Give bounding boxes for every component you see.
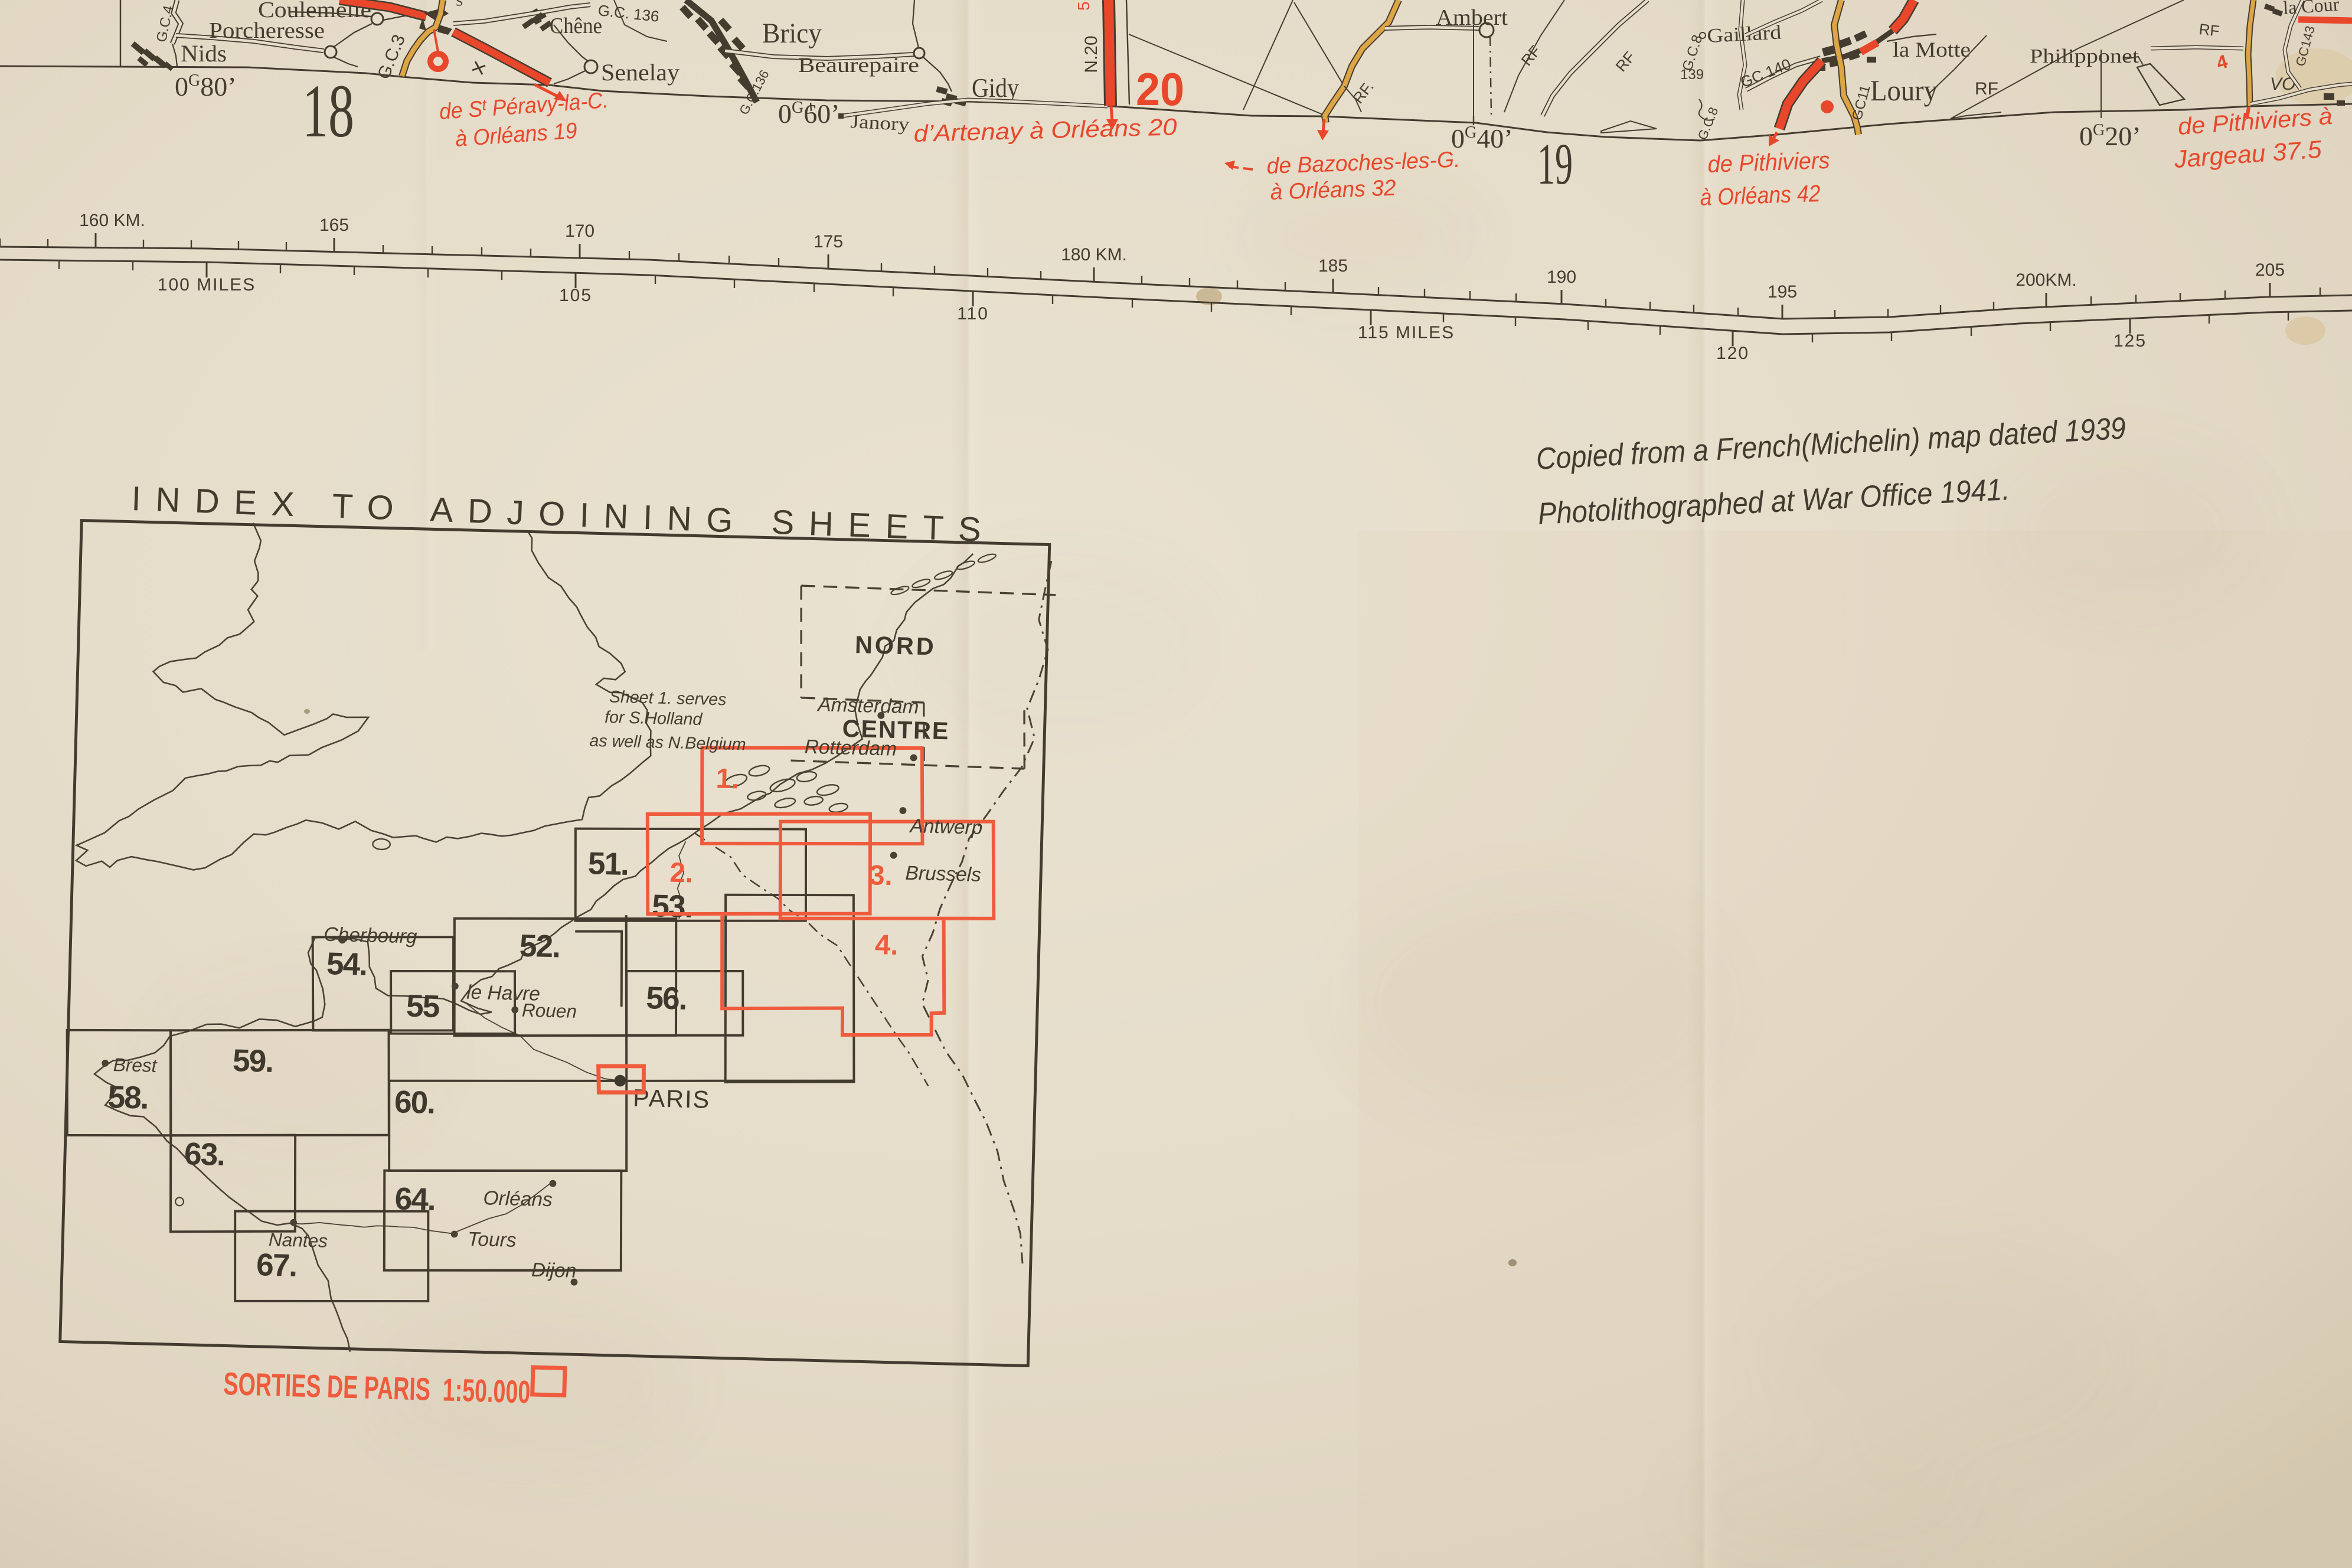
svg-text:60.: 60. <box>394 1084 435 1121</box>
svg-text:0G60’: 0G60’ <box>778 99 840 129</box>
svg-text:200KM.: 200KM. <box>2015 270 2076 290</box>
svg-text:Senelay: Senelay <box>601 59 680 86</box>
svg-text:1.: 1. <box>716 763 740 795</box>
svg-text:Sheet 1. serves: Sheet 1. serves <box>609 688 727 710</box>
svg-text:52.: 52. <box>519 929 560 965</box>
svg-text:170: 170 <box>565 221 594 241</box>
svg-text:205: 205 <box>2255 260 2285 280</box>
svg-text:18: 18 <box>302 69 354 153</box>
svg-text:125: 125 <box>2113 331 2147 351</box>
svg-text:Ambert: Ambert <box>1436 5 1508 30</box>
svg-text:Amsterdam: Amsterdam <box>816 694 919 718</box>
svg-text:110: 110 <box>957 304 989 324</box>
svg-text:53.: 53. <box>652 888 693 925</box>
svg-text:175: 175 <box>814 232 843 251</box>
svg-text:Antwerp: Antwerp <box>909 815 983 839</box>
svg-text:139: 139 <box>1680 67 1704 83</box>
svg-text:Orléans: Orléans <box>483 1187 553 1211</box>
svg-text:190: 190 <box>1547 267 1576 287</box>
svg-text:Rouen: Rouen <box>522 999 577 1022</box>
svg-text:58.: 58. <box>107 1080 149 1116</box>
svg-text:S: S <box>456 0 463 9</box>
svg-text:51.: 51. <box>587 846 629 882</box>
svg-text:Brussels: Brussels <box>905 863 982 886</box>
svg-text:56.: 56. <box>646 981 687 1017</box>
svg-text:RF: RF <box>2198 20 2220 40</box>
svg-text:120: 120 <box>1716 344 1749 363</box>
svg-text:à Orléans 32: à Orléans 32 <box>1270 176 1396 205</box>
svg-text:as well as N.Belgium: as well as N.Belgium <box>589 731 746 754</box>
svg-text:115 MILES: 115 MILES <box>1358 323 1455 342</box>
svg-text:2.: 2. <box>669 857 694 889</box>
svg-text:64.: 64. <box>394 1181 436 1217</box>
svg-text:63.: 63. <box>184 1136 225 1172</box>
svg-text:Nids: Nids <box>181 40 227 67</box>
svg-text:20: 20 <box>1136 63 1184 115</box>
svg-text:100 MILES: 100 MILES <box>158 275 256 295</box>
svg-text:Chêne: Chêne <box>550 14 602 38</box>
svg-text:0G40’: 0G40’ <box>1451 123 1513 153</box>
svg-text:de Pithiviers: de Pithiviers <box>1707 148 1830 178</box>
svg-text:54.: 54. <box>326 946 367 982</box>
svg-text:la Motte: la Motte <box>1893 38 1971 61</box>
svg-text:Janory: Janory <box>850 110 910 135</box>
svg-text:4.: 4. <box>874 929 899 961</box>
svg-text:19: 19 <box>1537 131 1573 197</box>
svg-text:for S.Holland: for S.Holland <box>605 708 703 729</box>
svg-text:67.: 67. <box>256 1247 297 1283</box>
svg-text:RF: RF <box>1975 79 1998 99</box>
svg-text:Rotterdam: Rotterdam <box>804 736 897 760</box>
svg-text:105: 105 <box>559 286 592 305</box>
svg-text:Cherbourg: Cherbourg <box>324 924 417 948</box>
svg-text:N.20: N.20 <box>1082 35 1101 73</box>
svg-text:5: 5 <box>1074 1 1093 11</box>
svg-text:165: 165 <box>319 215 349 235</box>
svg-text:Nantes: Nantes <box>269 1229 328 1252</box>
svg-text:160 KM.: 160 KM. <box>79 211 145 230</box>
svg-text:Bricy: Bricy <box>762 18 822 49</box>
svg-text:Loury: Loury <box>1870 74 1938 107</box>
svg-text:Tours: Tours <box>468 1229 517 1252</box>
svg-text:3.: 3. <box>869 860 893 891</box>
svg-text:195: 195 <box>1768 282 1797 302</box>
svg-text:Beaurepaire: Beaurepaire <box>798 53 919 77</box>
svg-text:Dijon: Dijon <box>531 1259 577 1282</box>
svg-text:Philipponet: Philipponet <box>2030 45 2139 67</box>
svg-text:59.: 59. <box>232 1043 273 1079</box>
svg-text:55: 55 <box>406 989 440 1024</box>
svg-text:Brest: Brest <box>113 1054 158 1076</box>
svg-text:0G20’: 0G20’ <box>2079 121 2141 151</box>
svg-text:180 KM.: 180 KM. <box>1061 245 1127 264</box>
svg-text:à Orléans 42: à Orléans 42 <box>1700 181 1821 211</box>
svg-text:0G80’: 0G80’ <box>175 71 237 102</box>
svg-text:185: 185 <box>1318 256 1348 276</box>
svg-text:NORD: NORD <box>855 631 937 660</box>
